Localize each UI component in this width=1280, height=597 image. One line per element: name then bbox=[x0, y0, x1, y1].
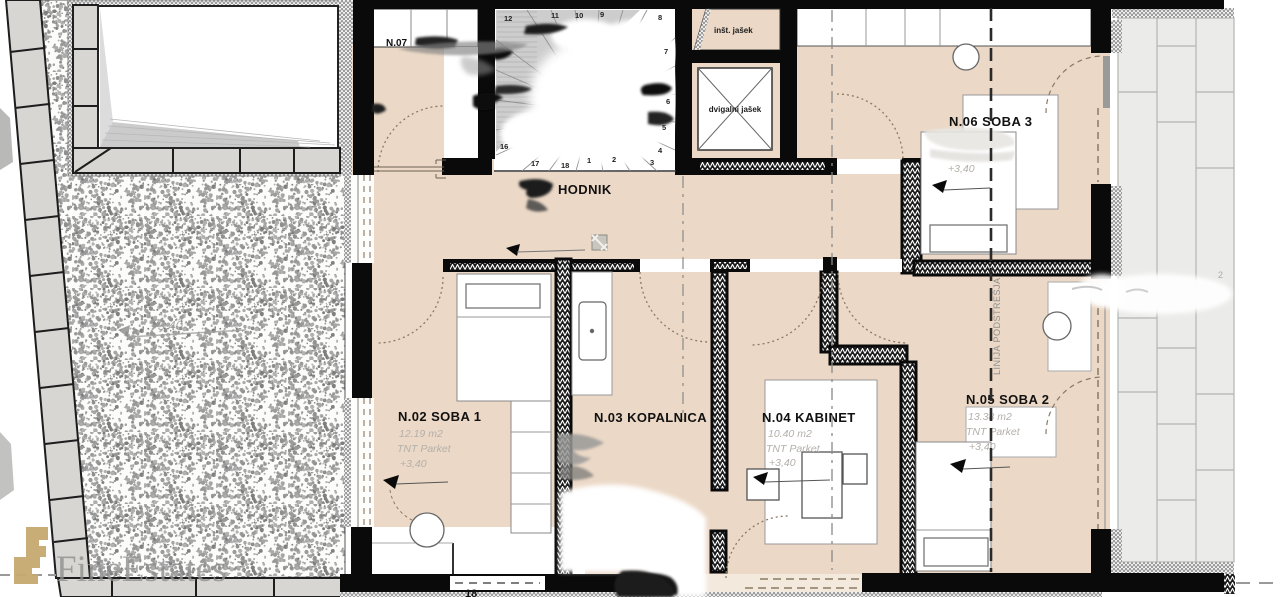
svg-text:10: 10 bbox=[575, 11, 583, 20]
svg-text:9: 9 bbox=[600, 10, 604, 19]
svg-text:3: 3 bbox=[650, 158, 654, 167]
svg-text:18: 18 bbox=[561, 161, 569, 170]
svg-text:+3,40: +3,40 bbox=[948, 163, 975, 175]
svg-text:TNT Parket: TNT Parket bbox=[397, 443, 452, 455]
svg-text:inšt. jašek: inšt. jašek bbox=[714, 26, 753, 35]
svg-text:LINIJA PODSTREŠJA: LINIJA PODSTREŠJA bbox=[992, 277, 1002, 375]
svg-text:+3,40: +3,40 bbox=[769, 457, 796, 469]
svg-text:N.05 SOBA 2: N.05 SOBA 2 bbox=[966, 392, 1049, 407]
svg-text:N.03 KOPALNICA: N.03 KOPALNICA bbox=[594, 410, 707, 425]
svg-text:1: 1 bbox=[587, 156, 591, 165]
svg-text:2: 2 bbox=[612, 155, 616, 164]
svg-text:18: 18 bbox=[465, 588, 477, 597]
svg-text:16: 16 bbox=[500, 142, 508, 151]
svg-text:6: 6 bbox=[666, 97, 670, 106]
svg-text:N.04 KABINET: N.04 KABINET bbox=[762, 410, 856, 425]
svg-text:FineEstates: FineEstates bbox=[56, 549, 227, 590]
svg-text:N.07: N.07 bbox=[386, 38, 408, 49]
svg-text:2: 2 bbox=[1218, 270, 1223, 280]
svg-text:7: 7 bbox=[664, 47, 668, 56]
svg-text:17: 17 bbox=[531, 159, 539, 168]
svg-text:+3,40: +3,40 bbox=[400, 458, 427, 470]
svg-text:N.02 SOBA 1: N.02 SOBA 1 bbox=[398, 409, 481, 424]
svg-text:8: 8 bbox=[658, 13, 662, 22]
svg-text:HODNIK: HODNIK bbox=[558, 182, 612, 197]
svg-text:+3,40: +3,40 bbox=[150, 318, 184, 333]
svg-text:11: 11 bbox=[551, 11, 559, 20]
svg-text:TNT Parket: TNT Parket bbox=[966, 426, 1021, 438]
svg-text:12.19 m2: 12.19 m2 bbox=[399, 428, 443, 440]
svg-text:TNT Parket: TNT Parket bbox=[766, 443, 821, 455]
svg-text:dvigalni jašek: dvigalni jašek bbox=[709, 105, 762, 114]
svg-text:12: 12 bbox=[504, 14, 512, 23]
svg-text:10.40 m2: 10.40 m2 bbox=[768, 428, 812, 440]
